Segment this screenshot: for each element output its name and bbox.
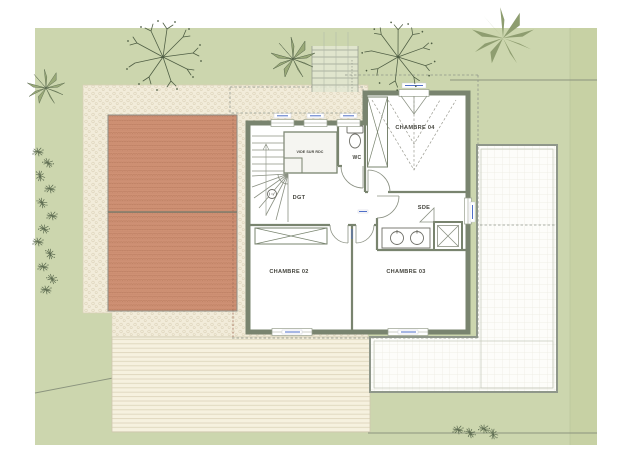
stairwell-void <box>284 132 337 173</box>
floor-plan-drawing <box>0 0 638 469</box>
wardrobe-icon-chambre-04 <box>368 97 388 167</box>
floor-plan-canvas: CHAMBRE 04 WC VIDE SUR RDC DGT SDE CHAMB… <box>0 0 638 469</box>
tiled-roof <box>108 115 237 337</box>
wardrobe-icon-chambre-02 <box>255 228 327 244</box>
ceiling-fixture-symbol <box>268 190 277 199</box>
double-sink-vanity-icon <box>382 228 430 248</box>
wood-deck-terrace <box>112 337 370 432</box>
